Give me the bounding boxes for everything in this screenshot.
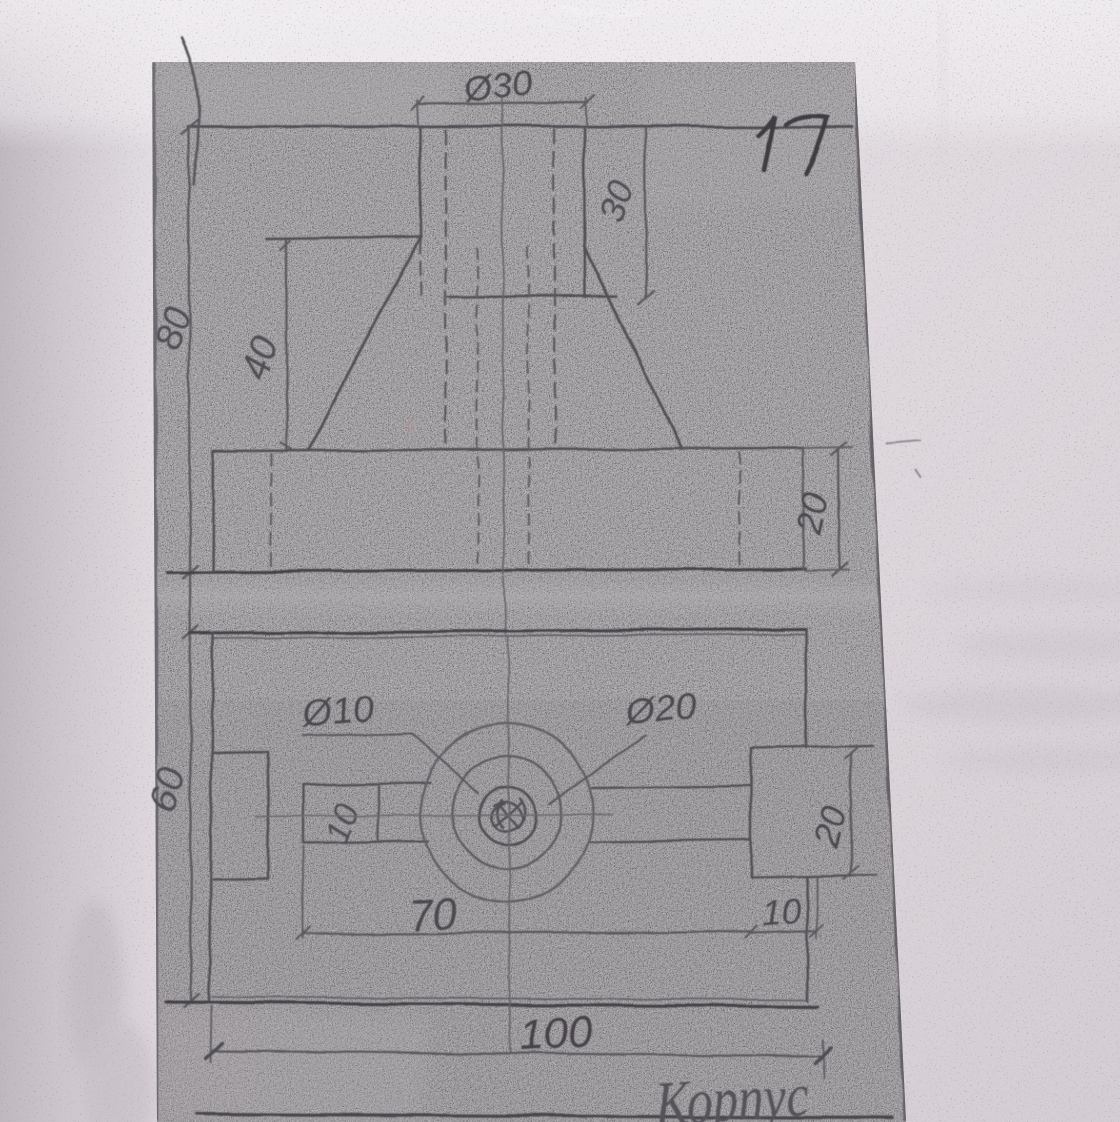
svg-text:20: 20: [788, 489, 837, 538]
svg-text:70: 70: [407, 889, 460, 941]
svg-text:Ø30: Ø30: [462, 61, 535, 109]
svg-text:100: 100: [518, 1007, 594, 1060]
svg-text:Ø10: Ø10: [298, 688, 375, 736]
svg-text:10: 10: [761, 892, 802, 933]
svg-text:Ø20: Ø20: [621, 686, 698, 734]
svg-text:Корпус: Корпус: [652, 1060, 811, 1122]
